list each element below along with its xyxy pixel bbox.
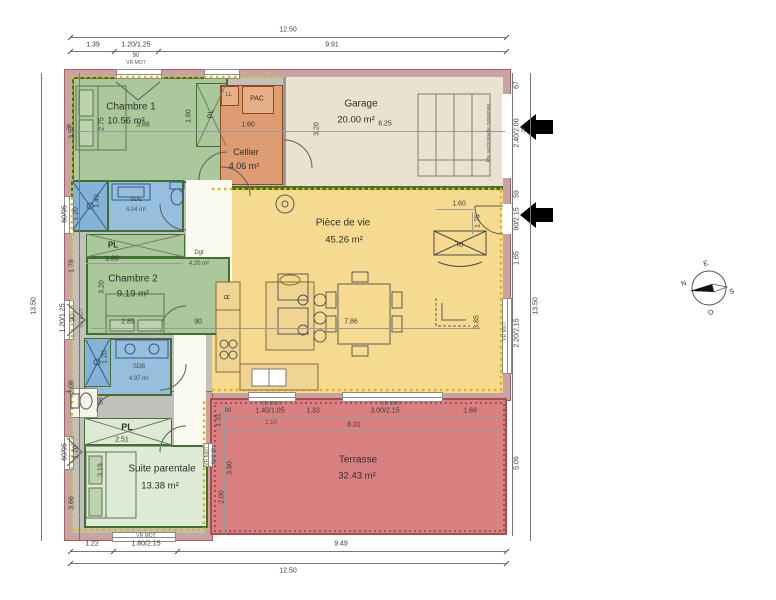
fridge-label: R bbox=[225, 294, 232, 299]
dim-living-h: 3.85 bbox=[474, 315, 481, 329]
shutter-motor-label: VR MOT bbox=[79, 308, 85, 327]
dim-terrasse-total: 8.31 bbox=[347, 422, 361, 429]
chambre1-label: Chambre 1 bbox=[106, 102, 155, 113]
tick bbox=[504, 561, 510, 567]
garage-label: Garage bbox=[344, 99, 377, 110]
dim-terrasse-s3: 1.33 bbox=[306, 408, 320, 415]
garage-area: 20.00 m² bbox=[337, 115, 375, 126]
washer-label: LL bbox=[226, 92, 233, 98]
compass-east: E bbox=[703, 260, 710, 268]
dim-bottom-s2: 1.80/2.15 bbox=[131, 541, 160, 548]
sde-area: 4.04 m² bbox=[126, 207, 146, 213]
dim-line bbox=[70, 37, 506, 38]
compass-north: N bbox=[680, 280, 687, 288]
dim-left-s4: 1.20/1.25 bbox=[60, 303, 67, 332]
compass-south: S bbox=[729, 288, 736, 296]
dim-line bbox=[530, 73, 531, 541]
dim-terrasse-l1: 1.31 bbox=[216, 413, 223, 427]
compass-rose bbox=[690, 271, 727, 305]
floor-plan: 12.50 1.39 1.20/1.25 9.91 90 VR MOT 1.22… bbox=[0, 0, 776, 600]
dim-closet-suite-w: 2.51 bbox=[115, 437, 129, 444]
room-dgt-lower bbox=[174, 335, 206, 447]
shutter-motor-label: VR MOT bbox=[502, 321, 508, 340]
dim-top-total: 12.50 bbox=[279, 27, 297, 34]
dim-line bbox=[472, 212, 473, 234]
tick bbox=[504, 35, 510, 41]
dim-right-s3: 59 bbox=[514, 190, 521, 198]
dim-line bbox=[436, 209, 474, 210]
dim-right-s1: 67 bbox=[514, 81, 521, 89]
dim-terrasse-l3: 2.00 bbox=[219, 490, 226, 504]
dim-line bbox=[224, 406, 225, 532]
dim-terrasse-s5: 1.69 bbox=[463, 408, 477, 415]
dim-chambre1-h: 2.75 bbox=[99, 117, 106, 131]
sde-label: SDE bbox=[130, 197, 142, 203]
dim-living-w: 7.86 bbox=[344, 319, 358, 326]
dim-suite-h: 3.19 bbox=[98, 463, 105, 477]
dim-terrasse-s1: 89 bbox=[225, 408, 232, 414]
dim-line bbox=[218, 417, 504, 418]
dim-entry-w: 1.60 bbox=[452, 201, 466, 208]
dim-garage-w: 6.25 bbox=[378, 121, 392, 128]
dim-line bbox=[70, 551, 506, 552]
dim-right-s5: 1.65 bbox=[514, 251, 521, 265]
dim-dgt-door: 90 bbox=[194, 319, 202, 326]
terrasse-area: 32.43 m² bbox=[338, 471, 376, 482]
dim-line bbox=[70, 563, 506, 564]
dim-cellier-w: 1.60 bbox=[241, 122, 255, 129]
window-chambre1-top bbox=[116, 69, 162, 79]
piece-de-vie-label: Pièce de vie bbox=[316, 218, 370, 229]
dim-terrasse-s2b: 1.10 bbox=[265, 420, 277, 426]
shutter-motor-label: VR MOT bbox=[204, 446, 210, 465]
garage-door-note: Pte sectionnelle motorisée bbox=[486, 104, 492, 163]
dim-line bbox=[79, 73, 80, 541]
dim-chambre2-h: 3.20 bbox=[99, 280, 106, 294]
shutter-motor-label: VR MOT bbox=[136, 533, 155, 539]
dim-sdb-shower: 1.20 bbox=[102, 350, 109, 364]
dim-right-s4: 90/2.15 bbox=[514, 207, 521, 230]
suite-label: Suite parentale bbox=[128, 464, 195, 475]
closet-hall bbox=[86, 234, 185, 257]
dim-left-s2: 60/95 bbox=[62, 205, 69, 223]
dim-bottom-s1: 1.22 bbox=[85, 541, 99, 548]
dim-top-s3: 9.91 bbox=[325, 42, 339, 49]
dim-line bbox=[41, 73, 42, 541]
shutter-motor-label: VR MOT bbox=[261, 401, 280, 407]
sdb-label: SDB bbox=[133, 364, 145, 370]
dim-left-s4b: 90 bbox=[70, 314, 77, 322]
entry-door bbox=[502, 204, 512, 234]
dim-line bbox=[86, 263, 183, 264]
arrow-entry-door bbox=[520, 202, 553, 228]
dim-left-s6b: 1.20 bbox=[73, 445, 80, 459]
dim-entry-h: 1.75 bbox=[475, 214, 482, 228]
suite-area: 13.38 m² bbox=[141, 481, 179, 492]
dim-wc-w: 98 bbox=[98, 397, 105, 405]
garage-sectional-door bbox=[502, 94, 512, 178]
piece-de-vie-area: 45.26 m² bbox=[325, 235, 363, 246]
dim-terrasse-s2: 1.40/1.05 bbox=[255, 408, 284, 415]
garage-living-wall bbox=[210, 186, 503, 190]
dim-chambre1-w: 3.88 bbox=[136, 122, 150, 129]
dim-chambre2-w: 2.89 bbox=[121, 319, 135, 326]
dim-closet1-h: 1.80 bbox=[186, 109, 193, 123]
dim-right-s7: 5.09 bbox=[514, 456, 521, 470]
dim-terrasse-s4: 3.00/2.15 bbox=[370, 408, 399, 415]
dim-left-s6: 60/95 bbox=[62, 443, 69, 461]
dim-line bbox=[85, 446, 171, 447]
cellier-label: Cellier bbox=[233, 147, 259, 157]
compass-west: O bbox=[707, 309, 715, 317]
dgt-area: 4.20 m² bbox=[189, 261, 209, 267]
chambre2-area: 9.19 m² bbox=[117, 289, 149, 300]
dim-left-s2b: 1.20 bbox=[73, 207, 80, 221]
tick bbox=[504, 549, 510, 555]
window-cellier-top bbox=[204, 69, 240, 79]
dim-right-total: 13.50 bbox=[533, 297, 540, 315]
dim-suite-window: 60/2.15 bbox=[211, 448, 217, 465]
shutter-motor-label: VR MOT bbox=[126, 60, 145, 66]
chambre2-label: Chambre 2 bbox=[108, 274, 157, 285]
dim-line bbox=[70, 51, 506, 52]
dim-top-window: 90 bbox=[133, 53, 140, 59]
tick bbox=[504, 49, 510, 55]
sdb-area: 4.97 m² bbox=[129, 376, 149, 382]
dim-bottom-s3: 9.49 bbox=[334, 541, 348, 548]
dim-line bbox=[90, 328, 480, 329]
dim-terrasse-l2: 3.90 bbox=[227, 461, 234, 475]
dim-chambre1-wall: 36 bbox=[67, 124, 73, 131]
cellier-area: 4.06 m² bbox=[229, 161, 260, 171]
dim-sde-shower: 1.40 bbox=[94, 194, 101, 208]
dim-line bbox=[72, 131, 505, 132]
dim-top-s1: 1.39 bbox=[86, 42, 100, 49]
dgt-label: Dgt bbox=[194, 250, 203, 256]
dim-line bbox=[222, 430, 504, 431]
room-terrasse bbox=[210, 398, 507, 535]
closet-chambre1-label: PL bbox=[208, 110, 215, 119]
dim-left-total: 13.50 bbox=[31, 297, 38, 315]
dim-garage-h: 3.20 bbox=[314, 122, 321, 136]
closet-hall-label: PL bbox=[108, 241, 118, 250]
dim-left-s3: 1.78 bbox=[69, 259, 76, 273]
dim-left-s5: 2.08 bbox=[69, 380, 76, 394]
closet-suite-label: PL bbox=[121, 422, 133, 432]
room-chambre2 bbox=[86, 257, 230, 335]
shutter-motor-label: VR MOT bbox=[381, 401, 400, 407]
closet-entry-label: PL bbox=[455, 240, 464, 247]
dim-right-s6: 2.20/2.15 bbox=[514, 318, 521, 347]
heat-pump-label: PAC bbox=[250, 96, 264, 103]
dim-right-s2: 2.40/2.00 bbox=[514, 118, 521, 147]
dim-closet-hall-w: 1.80 bbox=[105, 256, 119, 263]
dim-top-s2: 1.20/1.25 bbox=[121, 42, 150, 49]
dim-left-s7: 3.66 bbox=[69, 496, 76, 510]
terrasse-label: Terrasse bbox=[339, 455, 377, 466]
dim-right-s2b: 22 bbox=[521, 127, 527, 133]
dim-bottom-total: 12.50 bbox=[279, 568, 297, 575]
